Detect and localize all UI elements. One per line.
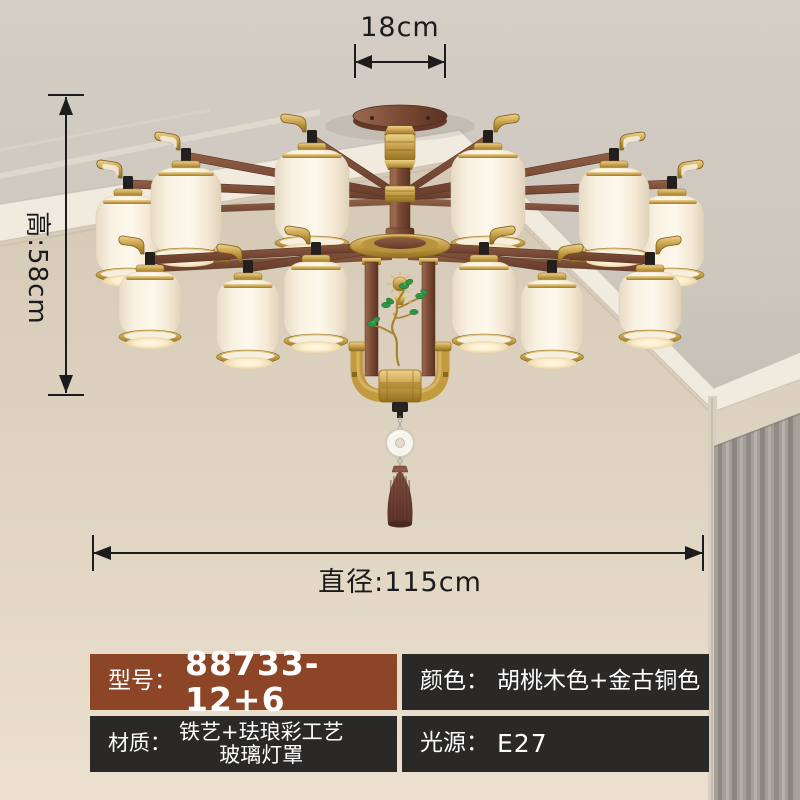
diameter-label: 直径:115cm xyxy=(290,560,510,599)
spec-color-value: 胡桃木色+金古铜色 xyxy=(497,669,700,694)
product-showcase: 18cm 高:58cm 直径:115cm 型号： 88733-12+6 颜色： … xyxy=(0,0,800,800)
drop-connector xyxy=(392,402,408,412)
spec-material-label: 材质： xyxy=(108,732,171,755)
spec-color: 颜色： 胡桃木色+金古铜色 xyxy=(402,654,709,710)
spec-table: 型号： 88733-12+6 颜色： 胡桃木色+金古铜色 材质： 铁艺+珐琅彩工… xyxy=(90,654,709,772)
spec-material: 材质： 铁艺+珐琅彩工艺 玻璃灯罩 xyxy=(90,716,397,772)
height-label: 高:58cm xyxy=(22,207,52,329)
spec-light-label: 光源： xyxy=(420,731,489,756)
spec-model-label: 型号： xyxy=(108,669,177,694)
spec-material-value: 铁艺+珐琅彩工艺 玻璃灯罩 xyxy=(179,721,344,767)
canopy-width-label: 18cm xyxy=(340,12,460,43)
spec-model-value: 88733-12+6 xyxy=(185,646,397,719)
spec-light-source: 光源： E27 xyxy=(402,716,709,772)
spec-light-value: E27 xyxy=(497,730,548,758)
spec-color-label: 颜色： xyxy=(420,669,489,694)
spec-model: 型号： 88733-12+6 xyxy=(90,654,397,710)
curtain xyxy=(710,405,800,800)
drum xyxy=(379,370,421,402)
